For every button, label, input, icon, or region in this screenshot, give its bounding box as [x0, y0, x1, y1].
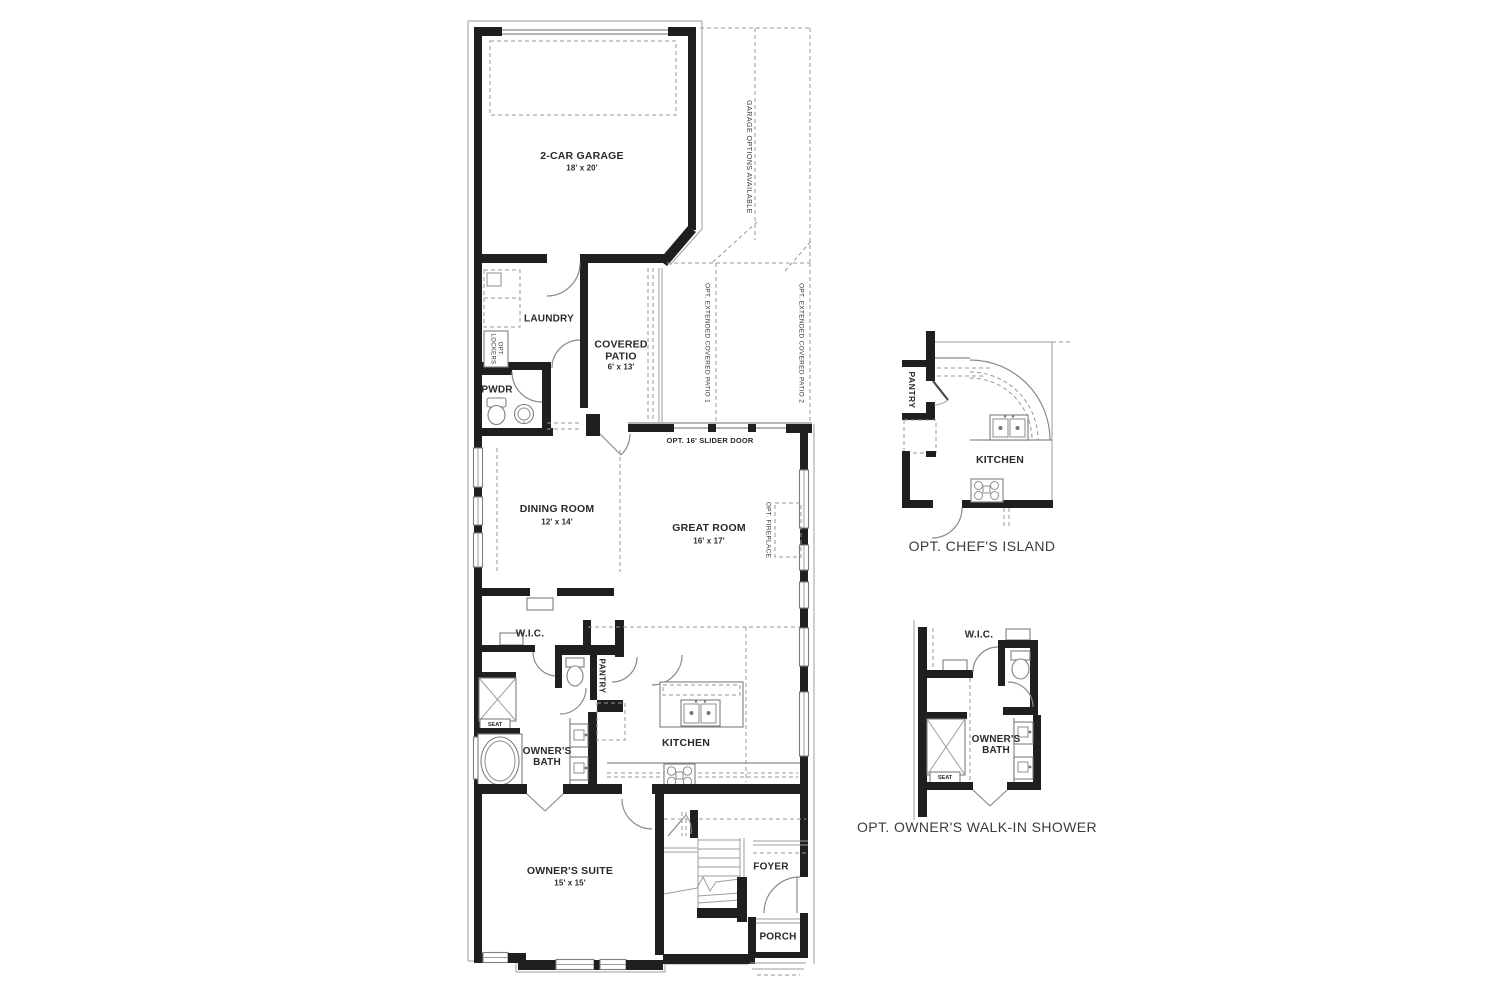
inset1-label-pantry: PANTRY [906, 372, 916, 409]
slider-door-wall [586, 414, 812, 455]
right-exterior-wall [799, 424, 809, 958]
inset1-caption: OPT. CHEF'S ISLAND [909, 539, 1056, 555]
room-dims-covered-patio: 6' x 13' [608, 364, 635, 373]
room-dims-owners-suite: 15' x 15' [554, 880, 585, 889]
room-label-great-room: GREAT ROOM [672, 523, 746, 535]
room-label-covered-patio: COVERED PATIO [589, 339, 653, 363]
room-dims-garage: 18' x 20' [566, 165, 597, 174]
extended-patio-dashes [716, 263, 810, 424]
inset-walkin-shower [914, 620, 1041, 820]
inset1-label-kitchen: KITCHEN [976, 455, 1024, 467]
room-label-owners-bath: OWNER'S BATH [518, 746, 576, 768]
inset-chefs-island [902, 331, 1072, 538]
room-dims-dining: 12' x 14' [541, 519, 572, 528]
note-garage-options: GARAGE OPTIONS AVAILABLE [744, 100, 752, 214]
room-label-laundry: LAUNDRY [524, 313, 574, 324]
note-opt-lockers: OPT. LOCKERS [489, 331, 502, 367]
room-label-porch: PORCH [759, 931, 796, 942]
suite-bath-wall [474, 784, 808, 829]
stairs [664, 838, 747, 922]
exterior-trim [468, 21, 814, 972]
room-label-garage: 2-CAR GARAGE [540, 151, 624, 163]
note-opt-fireplace: OPT. FIREPLACE [764, 502, 771, 559]
note-ext-patio-2: OPT. EXTENDED COVERED PATIO 2 [797, 283, 804, 403]
inset2-label-owners-bath: OWNER'S BATH [967, 734, 1025, 756]
room-label-owners-suite: OWNER'S SUITE [527, 866, 613, 878]
label-seat: SEAT [488, 722, 502, 728]
room-dims-great-room: 16' x 17' [693, 538, 724, 547]
hall-foyer-lines [664, 810, 808, 853]
floor-plan-page: 2-CAR GARAGE 18' x 20' GARAGE OPTIONS AV… [0, 0, 1500, 1000]
powder-room [474, 368, 553, 436]
note-ext-patio-1: OPT. EXTENDED COVERED PATIO 1 [703, 283, 710, 403]
inset2-label-seat: SEAT [938, 774, 952, 780]
room-label-foyer: FOYER [753, 861, 788, 872]
note-slider-door: OPT. 16' SLIDER DOOR [666, 437, 753, 445]
front-door [764, 877, 800, 913]
mud-nook [547, 368, 588, 429]
porch-walls [663, 917, 808, 975]
room-label-pwdr: PWDR [481, 384, 512, 395]
inset2-label-wic: W.I.C. [965, 629, 993, 640]
tub-icon [478, 734, 522, 788]
room-label-wic: W.I.C. [516, 628, 544, 639]
room-label-dining: DINING ROOM [520, 504, 595, 516]
room-label-pantry: PANTRY [597, 659, 606, 694]
room-label-kitchen: KITCHEN [662, 738, 710, 750]
inset2-caption: OPT. OWNER'S WALK-IN SHOWER [857, 820, 1097, 836]
